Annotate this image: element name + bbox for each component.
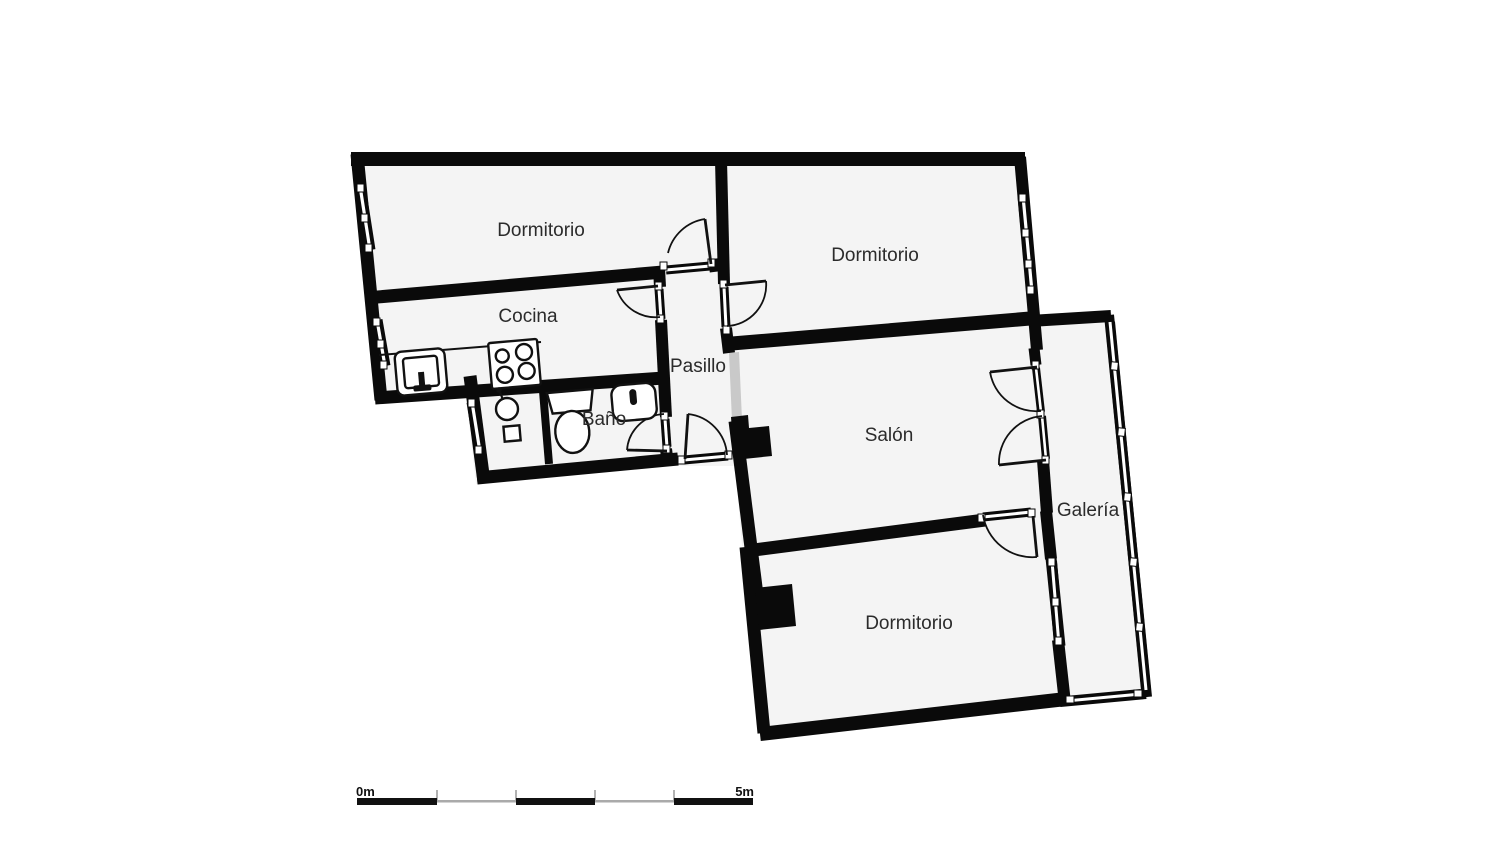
room-label-galeria: Galería [1057, 500, 1120, 521]
scale-end-label: 5m [735, 784, 754, 799]
room-label-salon: Salón [865, 425, 914, 446]
room-label-bano: Baño [582, 409, 626, 430]
scale-bar: 0m 5m [356, 784, 754, 805]
stove-4-burners [488, 339, 541, 389]
floor-plan-page: Dormitorio Dormitorio Cocina Pasillo Bañ… [0, 0, 1500, 844]
wall-pasillo-left-b [661, 320, 666, 417]
room-label-pasillo: Pasillo [670, 356, 726, 377]
burner-icon [515, 343, 532, 360]
room-label-dormitorio-top-left: Dormitorio [497, 220, 585, 241]
room-label-cocina: Cocina [498, 306, 558, 327]
floor-drain-square [503, 425, 520, 441]
scale-start-label: 0m [356, 784, 375, 799]
room-label-dormitorio-bottom: Dormitorio [865, 613, 953, 634]
wall-galeria-top [1030, 316, 1111, 321]
wall-salon-galeria-b [1043, 460, 1047, 513]
wall-dorm1-dorm2-divider [721, 160, 724, 284]
scale-segment-solid [516, 798, 595, 805]
room-label-dormitorio-top-right: Dormitorio [831, 245, 919, 266]
basin-tap-dot-icon [496, 387, 502, 393]
scale-segment-solid [674, 798, 753, 805]
scale-segment-solid [357, 798, 437, 805]
wall-dorm3-galeria-a [1046, 511, 1051, 559]
scale-segment-thin [595, 800, 674, 803]
burner-icon [495, 349, 509, 363]
kitchen-sink [394, 348, 448, 396]
burner-icon [496, 366, 513, 383]
wall-pillar-dorm3 [755, 584, 796, 630]
scale-segment-thin [437, 800, 516, 803]
floor-plan: Dormitorio Dormitorio Cocina Pasillo Bañ… [0, 0, 1500, 844]
burner-icon [518, 362, 535, 379]
